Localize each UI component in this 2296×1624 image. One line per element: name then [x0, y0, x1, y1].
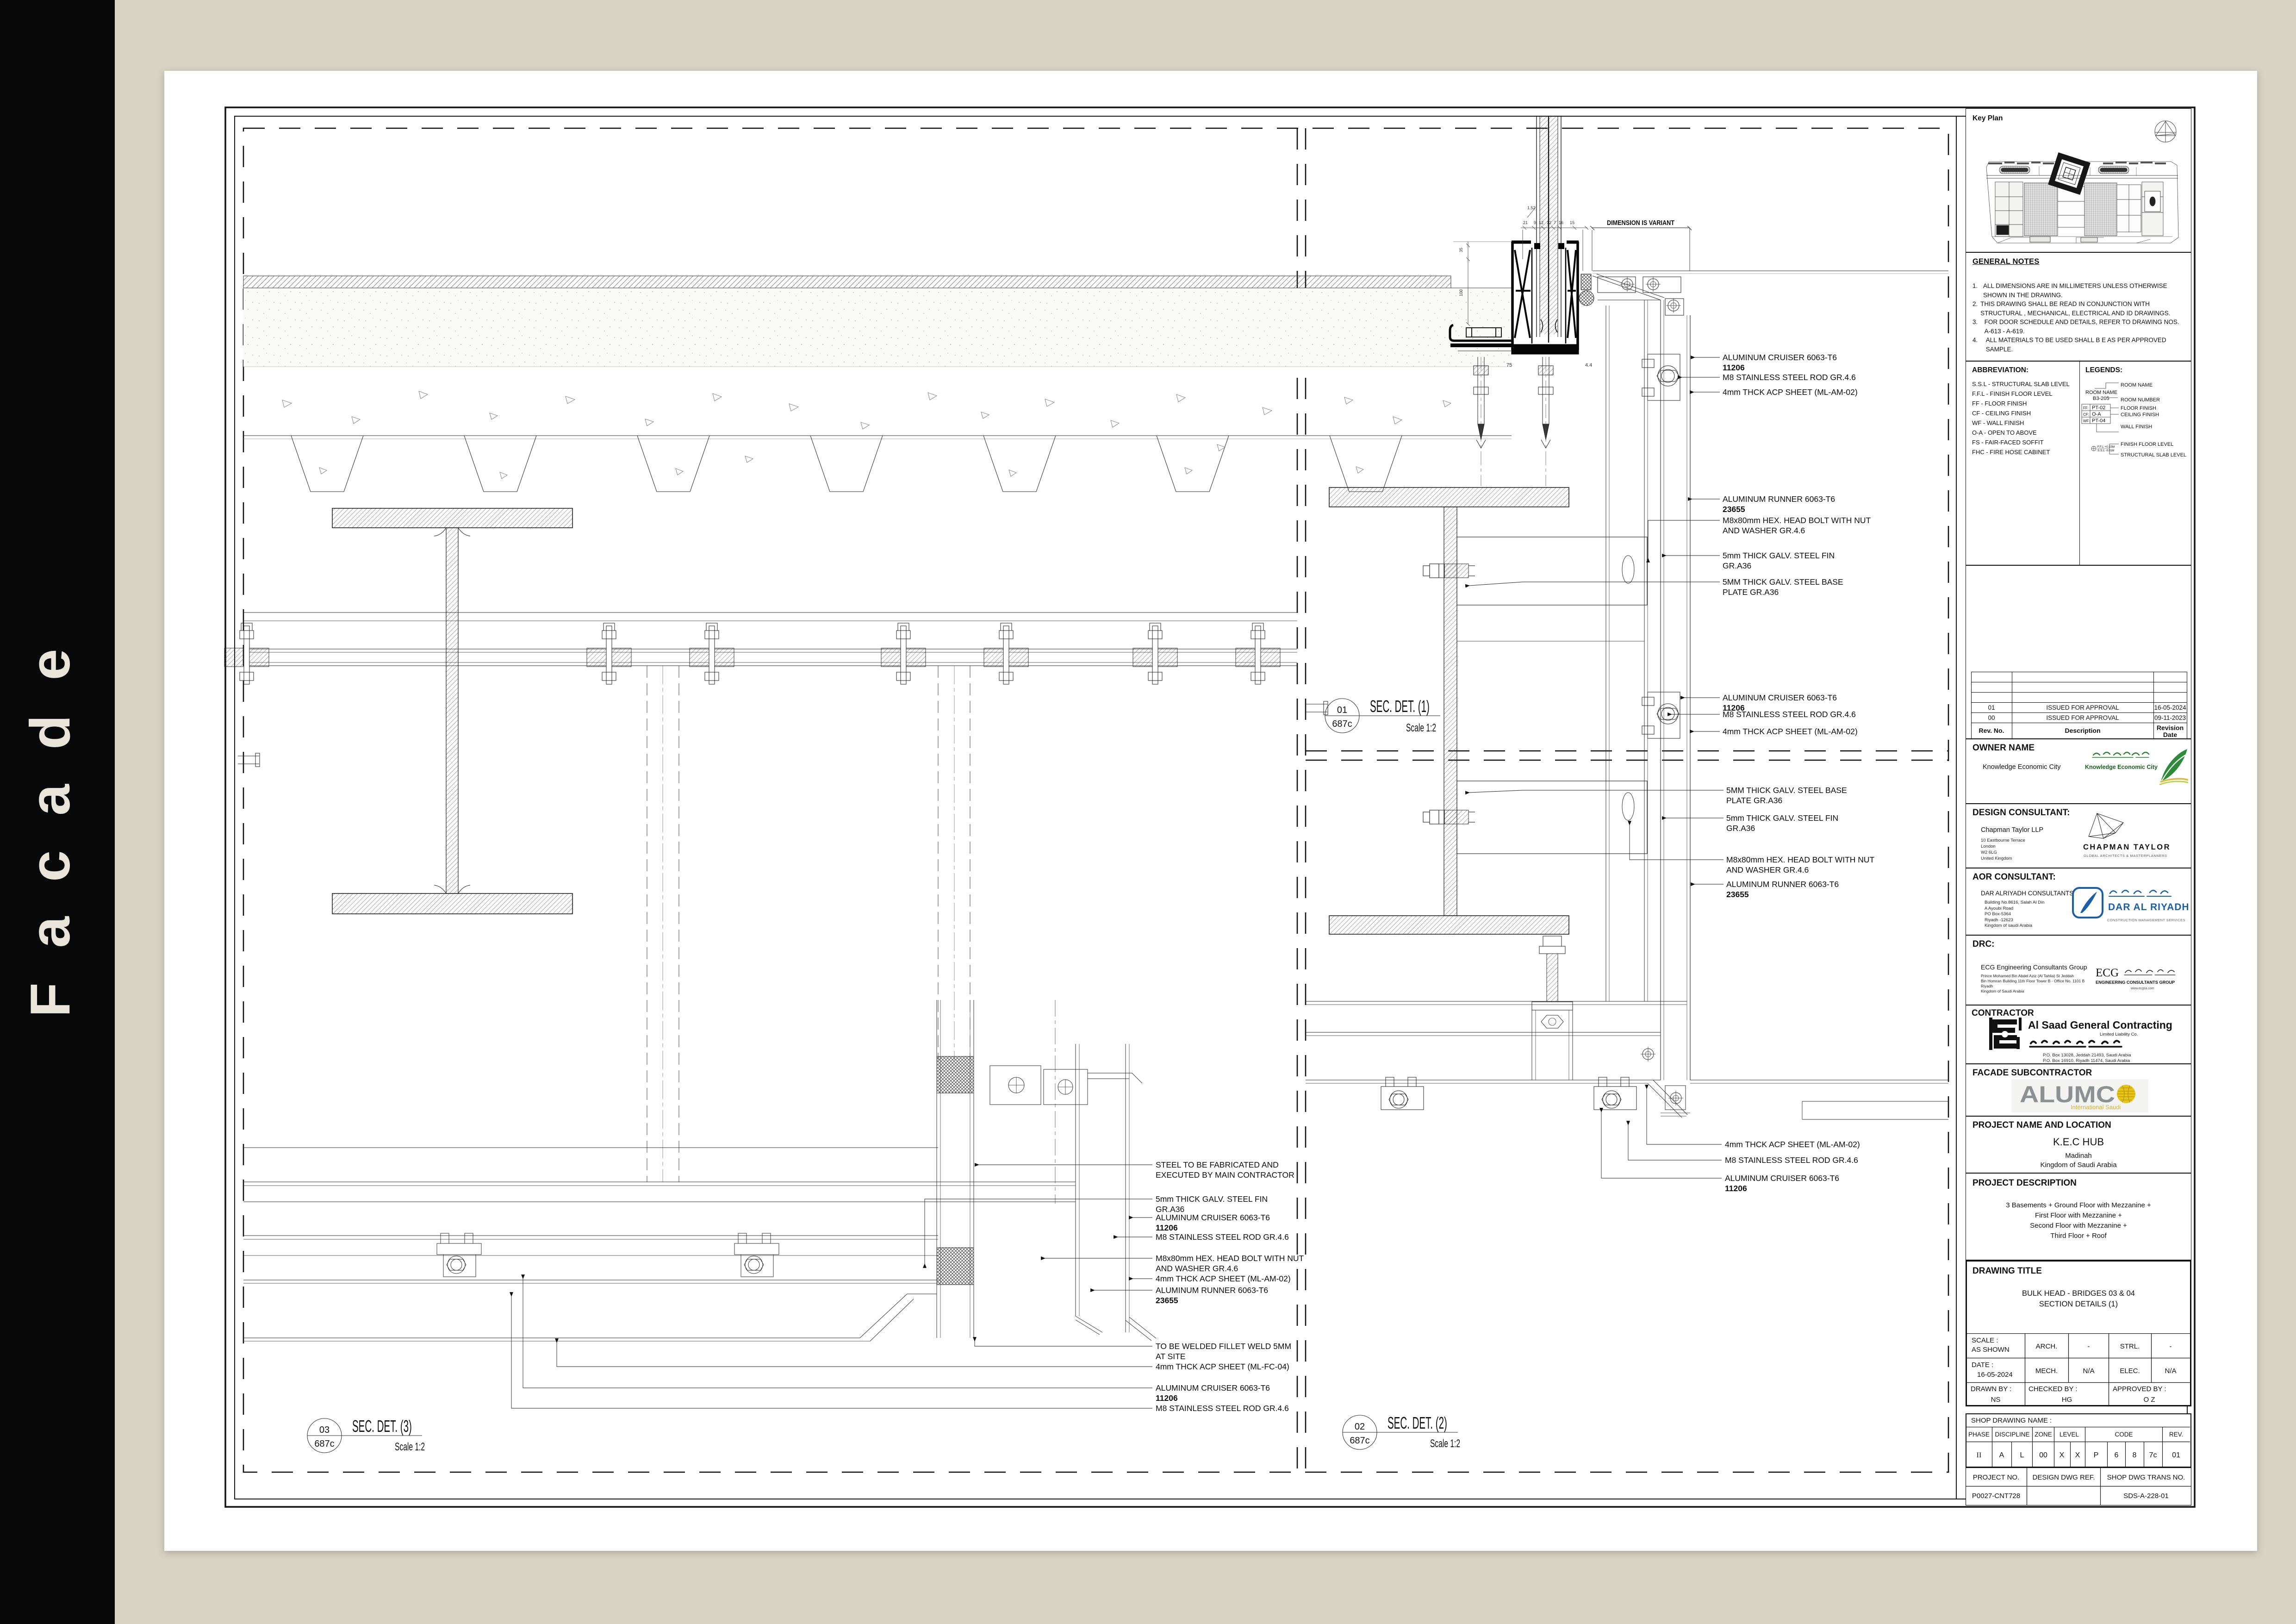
- svg-text:11206: 11206: [1156, 1223, 1178, 1232]
- svg-text:4mm THCK ACP SHEET (ML-FC-04): 4mm THCK ACP SHEET (ML-FC-04): [1156, 1362, 1289, 1371]
- svg-text:4mm THCK ACP SHEET (ML-AM-02): 4mm THCK ACP SHEET (ML-AM-02): [1725, 1140, 1860, 1149]
- svg-text:N/A: N/A: [2083, 1367, 2094, 1375]
- svg-text:NS: NS: [1991, 1396, 2001, 1404]
- svg-text:Rev. No.: Rev. No.: [1979, 727, 2004, 734]
- svg-text:SEC. DET. (1): SEC. DET. (1): [1370, 697, 1430, 716]
- svg-text:09-11-2023: 09-11-2023: [2154, 714, 2186, 721]
- svg-text:STRUCTURAL SLAB LEVEL: STRUCTURAL SLAB LEVEL: [2121, 452, 2186, 458]
- svg-text:5MM THICK GALV. STEEL BASE: 5MM THICK GALV. STEEL BASE: [1726, 786, 1847, 795]
- svg-text:GR.A36: GR.A36: [1726, 824, 1755, 833]
- svg-text:EXECUTED BY MAIN CONTRACTOR: EXECUTED BY MAIN CONTRACTOR: [1156, 1170, 1294, 1180]
- svg-text:8: 8: [2133, 1451, 2137, 1459]
- svg-text:AND WASHER GR.4.6: AND WASHER GR.4.6: [1156, 1264, 1238, 1273]
- svg-text:Scale 1:2: Scale 1:2: [1406, 722, 1436, 734]
- svg-text:CEILING FINISH: CEILING FINISH: [2121, 412, 2159, 418]
- svg-text:FLOOR FINISH: FLOOR FINISH: [2121, 406, 2156, 411]
- svg-text:PT-02: PT-02: [2092, 405, 2105, 411]
- svg-text:ALUMINUM CRUISER 6063-T6: ALUMINUM CRUISER 6063-T6: [1723, 353, 1837, 362]
- svg-text:PHASE: PHASE: [1968, 1431, 1990, 1438]
- svg-text:II: II: [1977, 1451, 1982, 1459]
- svg-text:A: A: [1999, 1451, 2004, 1459]
- svg-text:11206: 11206: [1723, 363, 1745, 372]
- svg-text:FF:: FF:: [2083, 406, 2089, 410]
- svg-text:ALUMINUM CRUISER 6063-T6: ALUMINUM CRUISER 6063-T6: [1156, 1383, 1270, 1393]
- svg-text:AT SITE: AT SITE: [1156, 1352, 1186, 1361]
- svg-text:75: 75: [1506, 362, 1512, 368]
- svg-text:X: X: [2075, 1451, 2080, 1459]
- svg-text:SDS-A-228-01: SDS-A-228-01: [2123, 1492, 2169, 1500]
- svg-text:M8x80mm HEX. HEAD BOLT WITH NU: M8x80mm HEX. HEAD BOLT WITH NUT: [1156, 1254, 1304, 1263]
- svg-text:P0027-CNT728: P0027-CNT728: [1972, 1492, 2020, 1500]
- svg-text:100: 100: [1459, 289, 1463, 296]
- svg-text:16-05-2024: 16-05-2024: [2154, 704, 2186, 711]
- svg-text:GLOBAL ARCHITECTS & MASTERPLAN: GLOBAL ARCHITECTS & MASTERPLANNERS: [2084, 854, 2167, 858]
- svg-text:687c: 687c: [314, 1439, 334, 1449]
- svg-text:687c: 687c: [1350, 1436, 1369, 1446]
- svg-text:GR.A36: GR.A36: [1723, 561, 1751, 570]
- svg-text:B3-205: B3-205: [2093, 396, 2109, 401]
- svg-text:SCALE :: SCALE :: [1972, 1337, 1998, 1344]
- svg-text:-: -: [2088, 1343, 2090, 1350]
- svg-text:Knowledge Economic City: Knowledge Economic City: [2085, 764, 2158, 770]
- svg-text:ARCH.: ARCH.: [2036, 1343, 2058, 1350]
- svg-text:M8 STAINLESS STEEL ROD GR.4.6: M8 STAINLESS STEEL ROD GR.4.6: [1723, 710, 1856, 719]
- svg-text:12: 12: [1547, 220, 1551, 225]
- svg-text:F.F.L +0.15M: F.F.L +0.15M: [2097, 445, 2115, 449]
- svg-text:9: 9: [1534, 220, 1536, 225]
- svg-text:ISSUED FOR APPROVAL: ISSUED FOR APPROVAL: [2046, 714, 2119, 721]
- svg-text:5MM THICK GALV. STEEL BASE: 5MM THICK GALV. STEEL BASE: [1723, 577, 1843, 587]
- svg-text:PLATE GR.A36: PLATE GR.A36: [1726, 796, 1782, 805]
- svg-text:O Z: O Z: [2144, 1396, 2155, 1404]
- svg-text:M8 STAINLESS STEEL ROD GR.4.6: M8 STAINLESS STEEL ROD GR.4.6: [1156, 1404, 1289, 1413]
- svg-text:HG: HG: [2062, 1396, 2072, 1404]
- svg-text:STRL.: STRL.: [2120, 1343, 2140, 1350]
- svg-text:PT-04: PT-04: [2092, 418, 2105, 424]
- svg-text:FINISH FLOOR LEVEL: FINISH FLOOR LEVEL: [2121, 442, 2173, 447]
- svg-text:23655: 23655: [1726, 890, 1749, 899]
- svg-text:WALL FINISH: WALL FINISH: [2121, 424, 2152, 430]
- svg-text:6: 6: [2115, 1451, 2119, 1459]
- svg-text:ALUMINUM RUNNER 6063-T6: ALUMINUM RUNNER 6063-T6: [1156, 1286, 1268, 1295]
- svg-text:Limited Liability Co.: Limited Liability Co.: [2100, 1032, 2138, 1037]
- svg-text:M8x80mm HEX. HEAD BOLT WITH NU: M8x80mm HEX. HEAD BOLT WITH NUT: [1726, 855, 1875, 864]
- svg-text:DIMENSION IS VARIANT: DIMENSION IS VARIANT: [1607, 219, 1674, 227]
- svg-text:ISSUED FOR APPROVAL: ISSUED FOR APPROVAL: [2046, 704, 2119, 711]
- svg-text:DISCIPLINE: DISCIPLINE: [1995, 1431, 2029, 1438]
- svg-text:SHOP DWG TRANS NO.: SHOP DWG TRANS NO.: [2107, 1474, 2185, 1481]
- svg-text:5mm THICK GALV. STEEL FIN: 5mm THICK GALV. STEEL FIN: [1156, 1194, 1268, 1204]
- svg-text:ROOM NAME: ROOM NAME: [2121, 382, 2153, 388]
- svg-text:00: 00: [2039, 1451, 2047, 1459]
- svg-text:DESIGN DWG REF.: DESIGN DWG REF.: [2032, 1474, 2095, 1481]
- svg-text:ECG: ECG: [2096, 967, 2119, 979]
- svg-text:15: 15: [1570, 220, 1574, 225]
- svg-text:APPROVED BY :: APPROVED BY :: [2113, 1385, 2166, 1393]
- svg-text:STEEL TO BE FABRICATED AND: STEEL TO BE FABRICATED AND: [1156, 1160, 1279, 1169]
- svg-text:M8x80mm HEX. HEAD BOLT WITH NU: M8x80mm HEX. HEAD BOLT WITH NUT: [1723, 516, 1871, 525]
- svg-text:DAR AL RIYADH: DAR AL RIYADH: [2108, 902, 2190, 912]
- svg-text:21: 21: [1523, 220, 1528, 225]
- svg-text:11206: 11206: [1156, 1393, 1178, 1403]
- svg-text:01: 01: [1337, 705, 1347, 715]
- svg-text:Scale 1:2: Scale 1:2: [1430, 1438, 1460, 1450]
- svg-text:-: -: [2170, 1343, 2172, 1350]
- svg-text:O-A: O-A: [2092, 412, 2101, 417]
- svg-text:16-05-2024: 16-05-2024: [1977, 1371, 2013, 1379]
- svg-text:ALUMINUM RUNNER 6063-T6: ALUMINUM RUNNER 6063-T6: [1726, 880, 1839, 889]
- svg-text:PROJECT NO.: PROJECT NO.: [1973, 1474, 2020, 1481]
- svg-text:CODE: CODE: [2115, 1431, 2133, 1438]
- svg-text:02: 02: [1355, 1422, 1365, 1432]
- svg-text:4.4: 4.4: [1585, 362, 1592, 368]
- svg-text:5mm THICK GALV. STEEL FIN: 5mm THICK GALV. STEEL FIN: [1726, 813, 1838, 823]
- svg-text:International Saudi: International Saudi: [2071, 1104, 2121, 1111]
- svg-text:Revision: Revision: [2157, 724, 2184, 731]
- svg-text:DATE :: DATE :: [1972, 1361, 1993, 1369]
- svg-text:MECH.: MECH.: [2035, 1367, 2058, 1375]
- svg-text:687c: 687c: [1332, 719, 1352, 729]
- svg-text:12: 12: [1539, 220, 1543, 225]
- svg-text:DRAWN BY :: DRAWN BY :: [1971, 1385, 2011, 1393]
- svg-text:ALUMINUM CRUISER 6063-T6: ALUMINUM CRUISER 6063-T6: [1725, 1174, 1839, 1183]
- svg-text:ENGINEERING CONSULTANTS GROUP: ENGINEERING CONSULTANTS GROUP: [2096, 980, 2175, 985]
- svg-text:ROOM NAME: ROOM NAME: [2085, 390, 2117, 395]
- svg-text:Date: Date: [2163, 731, 2178, 738]
- svg-text:7: 7: [1554, 220, 1556, 225]
- svg-text:AS SHOWN: AS SHOWN: [1972, 1346, 2010, 1354]
- svg-text:4mm THCK ACP SHEET (ML-AM-02): 4mm THCK ACP SHEET (ML-AM-02): [1723, 727, 1858, 736]
- svg-text:ROOM NUMBER: ROOM NUMBER: [2121, 397, 2160, 403]
- svg-text:Description: Description: [2065, 727, 2100, 734]
- svg-text:CHAPMAN TAYLOR: CHAPMAN TAYLOR: [2083, 843, 2171, 851]
- svg-text:5mm THICK GALV. STEEL FIN: 5mm THICK GALV. STEEL FIN: [1723, 551, 1835, 560]
- svg-text:PLATE GR.A36: PLATE GR.A36: [1723, 587, 1779, 597]
- svg-text:4mm THCK ACP SHEET (ML-AM-02): 4mm THCK ACP SHEET (ML-AM-02): [1156, 1274, 1291, 1283]
- svg-text:16: 16: [1559, 220, 1563, 225]
- svg-text:ZONE: ZONE: [2035, 1431, 2052, 1438]
- svg-text:ALUMINUM CRUISER 6063-T6: ALUMINUM CRUISER 6063-T6: [1723, 693, 1837, 702]
- svg-text:REV.: REV.: [2169, 1431, 2183, 1438]
- svg-text:AND WASHER GR.4.6: AND WASHER GR.4.6: [1726, 865, 1809, 874]
- svg-text:GR.A36: GR.A36: [1156, 1205, 1184, 1214]
- svg-text:CHECKED BY :: CHECKED BY :: [2028, 1385, 2078, 1393]
- svg-text:P.O. Box 13028, Jeddah 21493,: P.O. Box 13028, Jeddah 21493, Saudi Arab…: [2043, 1053, 2131, 1058]
- svg-text:P.O. Box 16910, Riyadh 11474,: P.O. Box 16910, Riyadh 11474, Saudi Arab…: [2043, 1058, 2130, 1063]
- svg-text:N/A: N/A: [2165, 1367, 2176, 1375]
- svg-text:11206: 11206: [1725, 1184, 1747, 1193]
- svg-text:M8 STAINLESS STEEL ROD GR.4.6: M8 STAINLESS STEEL ROD GR.4.6: [1725, 1156, 1858, 1165]
- svg-text:LEVEL: LEVEL: [2060, 1431, 2079, 1438]
- svg-text:4mm THCK ACP SHEET (ML-AM-02): 4mm THCK ACP SHEET (ML-AM-02): [1723, 387, 1858, 397]
- svg-text:00: 00: [1988, 714, 1995, 721]
- svg-text:CF:: CF:: [2083, 412, 2089, 417]
- svg-text:ALUMINUM RUNNER 6063-T6: ALUMINUM RUNNER 6063-T6: [1723, 494, 1835, 504]
- svg-text:TO BE WELDED FILLET WELD 5MM: TO BE WELDED FILLET WELD 5MM: [1156, 1342, 1291, 1351]
- svg-text:L: L: [2020, 1451, 2024, 1459]
- svg-text:1.52: 1.52: [1527, 206, 1536, 210]
- svg-text:03: 03: [319, 1425, 330, 1435]
- svg-text:23655: 23655: [1723, 505, 1745, 514]
- svg-text:01: 01: [1988, 704, 1995, 711]
- svg-text:WF:: WF:: [2083, 419, 2090, 423]
- svg-text:Scale 1:2: Scale 1:2: [395, 1441, 425, 1453]
- svg-text:35: 35: [1459, 248, 1463, 252]
- svg-text:7c: 7c: [2149, 1451, 2157, 1459]
- svg-text:ALUMINUM CRUISER 6063-T6: ALUMINUM CRUISER 6063-T6: [1156, 1213, 1270, 1222]
- svg-text:ELEC.: ELEC.: [2120, 1367, 2140, 1375]
- svg-text:SEC. DET. (2): SEC. DET. (2): [1388, 1414, 1447, 1433]
- svg-text:M8 STAINLESS STEEL ROD GR.4.6: M8 STAINLESS STEEL ROD GR.4.6: [1723, 373, 1856, 382]
- svg-text:Al Saad General Contracting: Al Saad General Contracting: [2028, 1019, 2172, 1031]
- svg-text:23655: 23655: [1156, 1296, 1178, 1305]
- svg-text:www.ecgsa.com: www.ecgsa.com: [2130, 987, 2154, 990]
- svg-text:01: 01: [2172, 1451, 2180, 1459]
- svg-text:SEC. DET. (3): SEC. DET. (3): [352, 1417, 412, 1436]
- svg-text:X: X: [2060, 1451, 2065, 1459]
- svg-text:S.S.L -0.0)M: S.S.L -0.0)M: [2097, 449, 2114, 452]
- svg-text:AND WASHER GR.4.6: AND WASHER GR.4.6: [1723, 526, 1805, 535]
- svg-text:P: P: [2094, 1451, 2099, 1459]
- svg-text:CONSTRUCTION MANAGEMENT SERVIC: CONSTRUCTION MANAGEMENT SERVICES: [2107, 918, 2185, 922]
- svg-text:M8 STAINLESS STEEL ROD GR.4.6: M8 STAINLESS STEEL ROD GR.4.6: [1156, 1232, 1289, 1242]
